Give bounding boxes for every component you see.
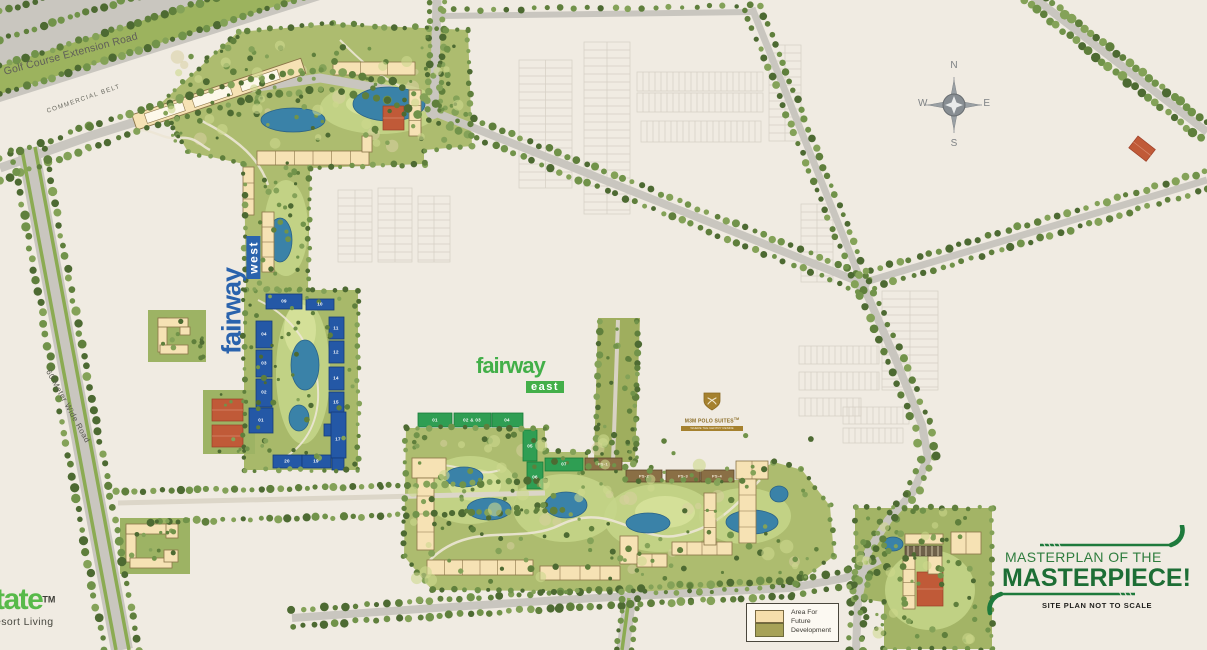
polo-suites-tagline: WHERE THE GENTRY RESIDE xyxy=(681,426,743,431)
compass-rose: N W E S xyxy=(918,62,990,150)
legend-label: Area For Future Development xyxy=(791,608,837,636)
compass-east-label: E xyxy=(983,98,990,109)
tower-label-west: 09 xyxy=(281,299,287,304)
fairway-east-sub: east xyxy=(526,381,564,393)
tower-label-west: 04 xyxy=(261,332,267,337)
tower-label-polo: PS-2 xyxy=(639,474,649,479)
tower-label-polo: PS-3 xyxy=(678,474,688,479)
estate-wordmark: tateTM xyxy=(0,585,55,615)
tower-label-polo: PS-4 xyxy=(712,474,722,479)
tower-label-west: 03 xyxy=(261,361,267,366)
title-line2: MASTERPIECE! xyxy=(1002,564,1191,593)
tower-label-west: 02 xyxy=(261,390,267,395)
tower-label-east: 01 xyxy=(432,418,438,423)
compass-rose-icon xyxy=(924,74,984,136)
legend-box: Area For Future Development xyxy=(746,603,839,642)
tower-label-west: 01 xyxy=(258,418,264,423)
fairway-west-logo: fairway west xyxy=(219,236,262,354)
fairway-west-wordmark: fairway xyxy=(219,236,243,354)
polo-suites-logo: M3M POLO SUITESTM WHERE THE GENTRY RESID… xyxy=(679,392,745,431)
tower-label-west: 15 xyxy=(333,400,339,405)
tower-label-polo: PS-1 xyxy=(598,462,608,467)
tower-label-west: 14 xyxy=(333,376,339,381)
tower-label-west: 20 xyxy=(284,459,290,464)
tower-label-west: 11 xyxy=(333,326,338,331)
estate-logo: tateTM esort Living xyxy=(0,585,55,628)
tower-label-west: 10 xyxy=(317,302,323,307)
title-block: MASTERPLAN OF THE MASTERPIECE! SITE PLAN… xyxy=(975,525,1207,625)
tower-label-east: 02 & 03 xyxy=(463,418,481,423)
compass-south-label: S xyxy=(951,138,958,149)
fairway-east-logo: fairway east xyxy=(476,356,564,395)
compass-north-label: N xyxy=(950,60,957,71)
legend-swatch-beige xyxy=(755,610,784,623)
tower-label-west: 12 xyxy=(333,350,339,355)
compass-west-label: W xyxy=(918,98,927,109)
polo-shield-icon xyxy=(702,392,722,411)
tower-label-west: 17 xyxy=(335,437,341,442)
site-map: Golf Course Extension Road COMMERCIAL BE… xyxy=(0,0,1207,650)
estate-tagline: esort Living xyxy=(0,616,55,628)
polo-suites-name: M3M POLO SUITESTM xyxy=(679,417,745,425)
fairway-east-wordmark: fairway xyxy=(476,356,564,376)
fairway-west-sub: west xyxy=(247,236,261,279)
tower-label-east: 06 xyxy=(532,475,538,480)
title-line3: SITE PLAN NOT TO SCALE xyxy=(1042,601,1152,610)
title-line1: MASTERPLAN OF THE xyxy=(1005,549,1162,565)
tower-label-east: 04 xyxy=(504,418,510,423)
legend-swatch-olive xyxy=(755,623,784,637)
tower-label-east: 05 xyxy=(527,444,533,449)
tower-label-east: 07 xyxy=(561,462,567,467)
tower-label-west: 19 xyxy=(313,459,319,464)
